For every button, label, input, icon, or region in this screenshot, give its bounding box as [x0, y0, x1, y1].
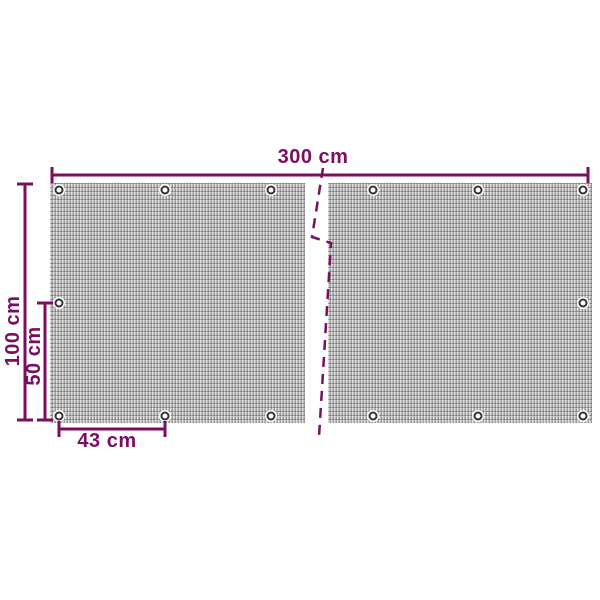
- grommet: [55, 412, 64, 421]
- grommet: [267, 186, 276, 195]
- mesh-panel-left: [50, 183, 305, 423]
- grommet: [55, 299, 64, 308]
- grommet: [267, 412, 276, 421]
- product-dimension-diagram: 300 cm 100 cm 50 cm 43 cm: [0, 0, 600, 600]
- grommet: [161, 412, 170, 421]
- dimension-line-total-width: [52, 167, 588, 183]
- grommet: [369, 186, 378, 195]
- mesh-panel-right: [328, 183, 592, 423]
- grommet: [579, 186, 588, 195]
- grommet: [474, 186, 483, 195]
- grommet: [55, 186, 64, 195]
- dimension-label-total-height: 100 cm: [3, 296, 23, 367]
- grommet: [474, 412, 483, 421]
- grommet: [161, 186, 170, 195]
- dimension-label-eyelet-spacing: 43 cm: [77, 431, 136, 451]
- grommet: [369, 412, 378, 421]
- grommet: [579, 412, 588, 421]
- grommet: [579, 299, 588, 308]
- dimension-label-total-width: 300 cm: [278, 147, 349, 167]
- dimension-label-half-height: 50 cm: [24, 326, 44, 385]
